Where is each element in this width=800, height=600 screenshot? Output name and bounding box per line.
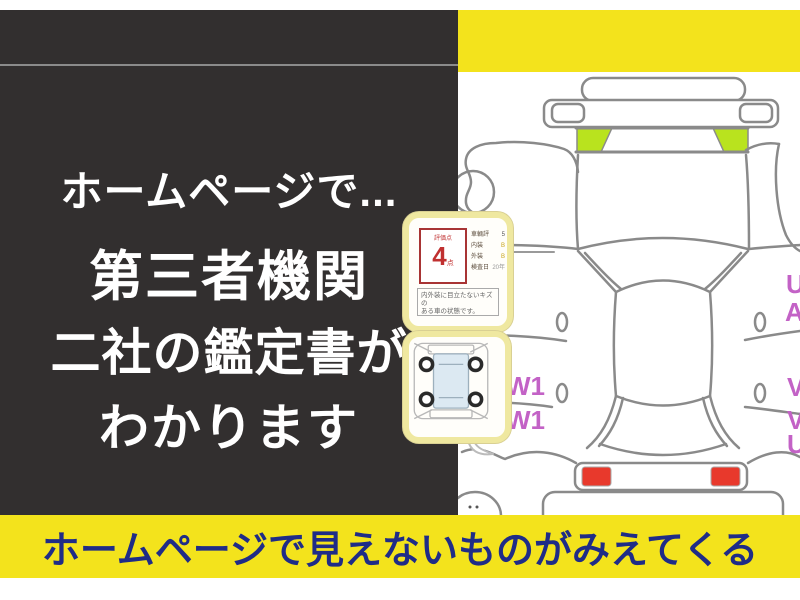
wheel-circle — [469, 393, 481, 405]
damage-code-u-right-2: U — [787, 429, 800, 459]
side-mirror-circle — [458, 171, 494, 213]
wheel-circle — [420, 358, 432, 370]
row-value: B — [501, 241, 505, 252]
c-pillar-right-inner — [703, 398, 727, 446]
taillight-right — [711, 467, 740, 486]
door-handle-left-front — [557, 313, 567, 331]
door-handle-right-front — [755, 313, 765, 331]
c-pillar-left-inner — [599, 398, 623, 446]
score-detail-rows: 車輌評5 内装B 外装B 検査日20年 — [471, 230, 505, 274]
roof-side-right — [710, 292, 712, 396]
hood-edge-left — [577, 155, 579, 249]
taillight-left — [582, 467, 611, 486]
green-highlight-right — [713, 128, 748, 152]
note-line: 内外装に目立たないキズの — [421, 292, 496, 308]
roof-side-left — [614, 292, 616, 396]
score-box: 評価点 4点 — [419, 228, 467, 284]
top-yellow-strip — [458, 10, 800, 72]
roof-front-arc — [616, 281, 710, 293]
c-pillar-left-outer — [587, 396, 616, 448]
wheel-circle — [420, 393, 432, 405]
damage-codes: W1 W1 U A V V U — [506, 269, 800, 459]
headline-line-3: 二社の鑑定書が — [0, 313, 458, 385]
frame-front-bar — [428, 345, 474, 354]
banner-text: ホームページで見えないものがみえてくる — [42, 519, 758, 574]
door-handle-right-rear — [755, 384, 765, 402]
condition-note-box: 内外装に目立たないキズの ある車の状態です。 — [417, 288, 499, 316]
headline-line-1: ホームページで... — [0, 158, 458, 219]
headline-line-2: 第三者機関 — [0, 232, 458, 311]
roof-rear-arc — [616, 396, 710, 406]
row-label: 外装 — [471, 252, 483, 263]
row-label: 車輌評 — [471, 230, 489, 241]
panel-separator-line — [0, 64, 458, 66]
left-dark-panel: ホームページで... 第三者機関 二社の鑑定書が わかります — [0, 10, 458, 515]
promo-image: ホームページで... 第三者機関 二社の鑑定書が わかります — [0, 0, 800, 600]
right-side-line-mid — [745, 331, 800, 340]
underbody-schematic — [409, 337, 493, 425]
right-body-edge — [776, 144, 800, 251]
row-value: B — [501, 252, 505, 263]
note-line: ある車の状態です。 — [421, 308, 496, 316]
front-bumper — [582, 78, 745, 101]
a-pillar-left-outer — [578, 251, 616, 292]
frame-diagram-card — [403, 331, 511, 443]
green-highlight-left — [577, 128, 612, 152]
score-row: 車輌評5 — [471, 230, 505, 241]
row-label: 検査日 — [471, 263, 489, 274]
dot — [469, 506, 472, 509]
inspection-certificate-card: 評価点 4点 車輌評5 内装B 外装B 検査日20年 内外装に目立たないキズの … — [403, 212, 513, 332]
frame-rear-bar — [430, 410, 472, 418]
frame-lines — [414, 343, 488, 418]
row-label: 内装 — [471, 241, 483, 252]
score-value: 4点 — [432, 243, 453, 277]
damage-code-v-right-1: V — [787, 372, 800, 402]
score-number: 4 — [432, 241, 446, 271]
a-pillar-right-inner — [705, 253, 741, 289]
hood-edge-right — [746, 155, 749, 249]
damage-code-u-right: U — [786, 269, 800, 299]
c-pillar-right-outer — [710, 396, 739, 448]
rear-wheel-arch — [458, 492, 501, 515]
cowl-arc — [578, 238, 748, 249]
a-pillar-right-outer — [710, 251, 748, 292]
score-row: 外装B — [471, 252, 505, 263]
damage-code-w1-upper: W1 — [506, 371, 545, 401]
headline-line-4: わかります — [0, 388, 458, 460]
right-fender-top — [746, 143, 779, 150]
door-handle-left-rear — [557, 384, 567, 402]
score-row: 内装B — [471, 241, 505, 252]
row-value: 20年 — [492, 263, 505, 274]
damage-code-w1-lower: W1 — [506, 405, 545, 435]
rear-bumper-lower — [543, 492, 783, 515]
score-unit: 点 — [447, 260, 454, 267]
wheel-circle — [469, 358, 481, 370]
a-pillar-left-inner — [585, 253, 621, 289]
right-side-line-top — [749, 245, 800, 249]
row-value: 5 — [502, 230, 505, 241]
bottom-yellow-banner: ホームページで見えないものがみえてくる — [0, 515, 800, 578]
score-row: 検査日20年 — [471, 263, 505, 274]
damage-code-a-right: A — [785, 297, 800, 327]
cabin-area — [434, 354, 469, 408]
dot — [476, 506, 479, 509]
rear-window-arc — [600, 444, 726, 455]
